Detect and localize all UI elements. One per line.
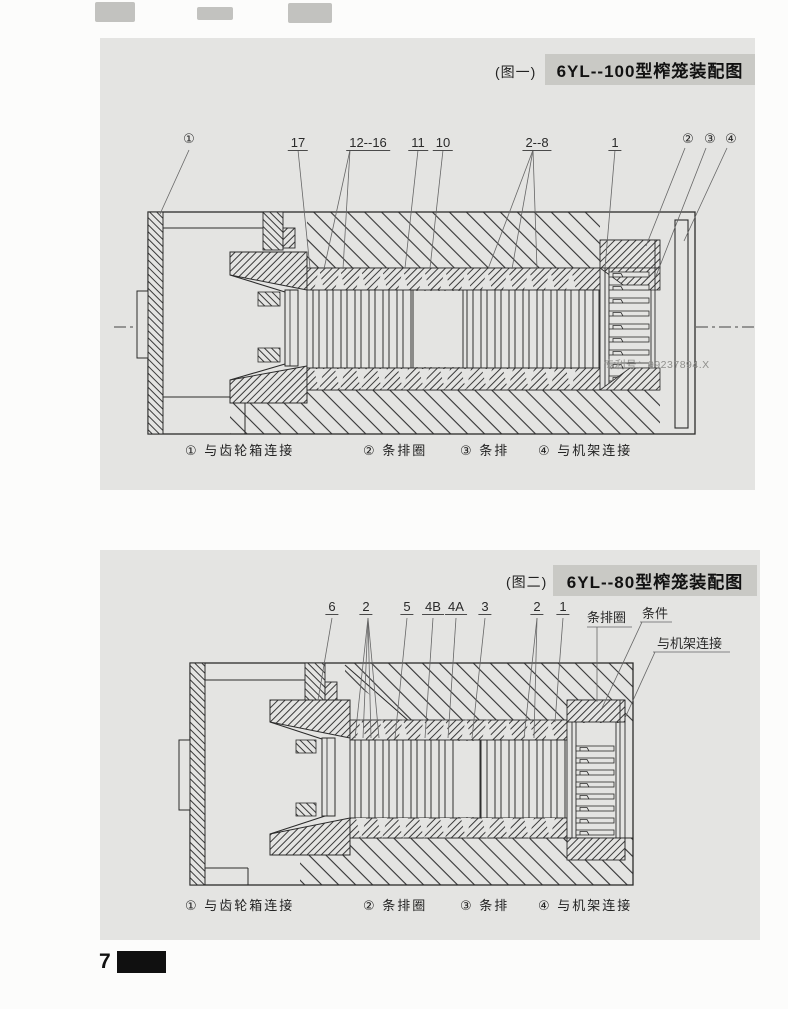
figure2-legend-gearbox: ① 与齿轮箱连接 (185, 895, 294, 914)
figure2-legend-slat: ③ 条排 (460, 895, 509, 914)
figure2-label-slat-ring: 条排圈 (587, 611, 626, 624)
figure1-callout-11: 11 (408, 136, 428, 151)
scanned-page: { "figure1": { "tag": "(图一)", "title": "… (0, 0, 788, 1009)
figure2-title: 6YL--80型榨笼装配图 (567, 568, 743, 593)
figure2-callout-6: 6 (325, 600, 338, 615)
slat-cage (567, 700, 625, 860)
figure2-callout-3: 3 (478, 600, 491, 615)
figure1-legend-slat: ③ 条排 (460, 440, 509, 459)
figure1-callout-1: 1 (608, 136, 621, 151)
figure1-callout-2-8: 2--8 (522, 136, 551, 151)
top-mark (95, 2, 135, 22)
figure1-title-highlight: 6YL--100型榨笼装配图 (545, 54, 755, 85)
figure2-panel: (图二) 6YL--80型榨笼装配图 6 2 5 4B 4A 3 2 1 条排圈… (100, 550, 760, 940)
figure2-tag: (图二) (506, 572, 547, 592)
funnel-cone (230, 252, 307, 403)
frame-plate (675, 220, 688, 428)
top-mark (288, 3, 332, 23)
figure1-legend-frame: ④ 与机架连接 (538, 440, 632, 459)
top-column (263, 212, 295, 250)
figure2-callout-5: 5 (400, 600, 413, 615)
barrel (307, 268, 600, 390)
figure2-label-slat: 条件 (642, 607, 668, 620)
figure1-callout-3-circle: ③ (704, 132, 716, 145)
top-mark (197, 7, 233, 20)
figure2-title-highlight: 6YL--80型榨笼装配图 (553, 565, 757, 596)
figure2-callout-4a: 4A (445, 600, 467, 615)
patent-watermark: 专利号：99237894.X (604, 358, 710, 371)
figure1-callout-10: 10 (433, 136, 453, 151)
figure2-legend-frame: ④ 与机架连接 (538, 895, 632, 914)
figure1-drawing: 专利号：99237894.X (100, 38, 755, 490)
barrel (350, 719, 567, 839)
figure2-callout-1: 1 (556, 600, 569, 615)
figure1-callout-2-circle: ② (682, 132, 694, 145)
page-number: 7 (99, 950, 111, 974)
figure1-panel: 专利号：99237894.X (图一) 6YL--100型榨笼装配图 ① 17 … (100, 38, 755, 490)
figure1-callout-17: 17 (288, 136, 308, 151)
figure1-callout-4-circle: ④ (725, 132, 737, 145)
figure1-legend-gearbox: ① 与齿轮箱连接 (185, 440, 294, 459)
figure1-legend-slat-ring: ② 条排圈 (363, 440, 427, 459)
figure1-tag: (图一) (495, 62, 536, 82)
figure2-legend-slat-ring: ② 条排圈 (363, 895, 427, 914)
figure1-callout-12-16: 12--16 (346, 136, 390, 151)
figure1-callout-1-circle: ① (183, 132, 195, 145)
figure2-callout-4b: 4B (422, 600, 444, 615)
figure2-callout-2b: 2 (530, 600, 543, 615)
funnel-cone (270, 700, 350, 855)
figure1-title: 6YL--100型榨笼装配图 (557, 57, 744, 82)
figure2-label-frame-conn: 与机架连接 (657, 637, 722, 650)
redaction-bar (117, 951, 166, 973)
figure2-callout-2a: 2 (359, 600, 372, 615)
